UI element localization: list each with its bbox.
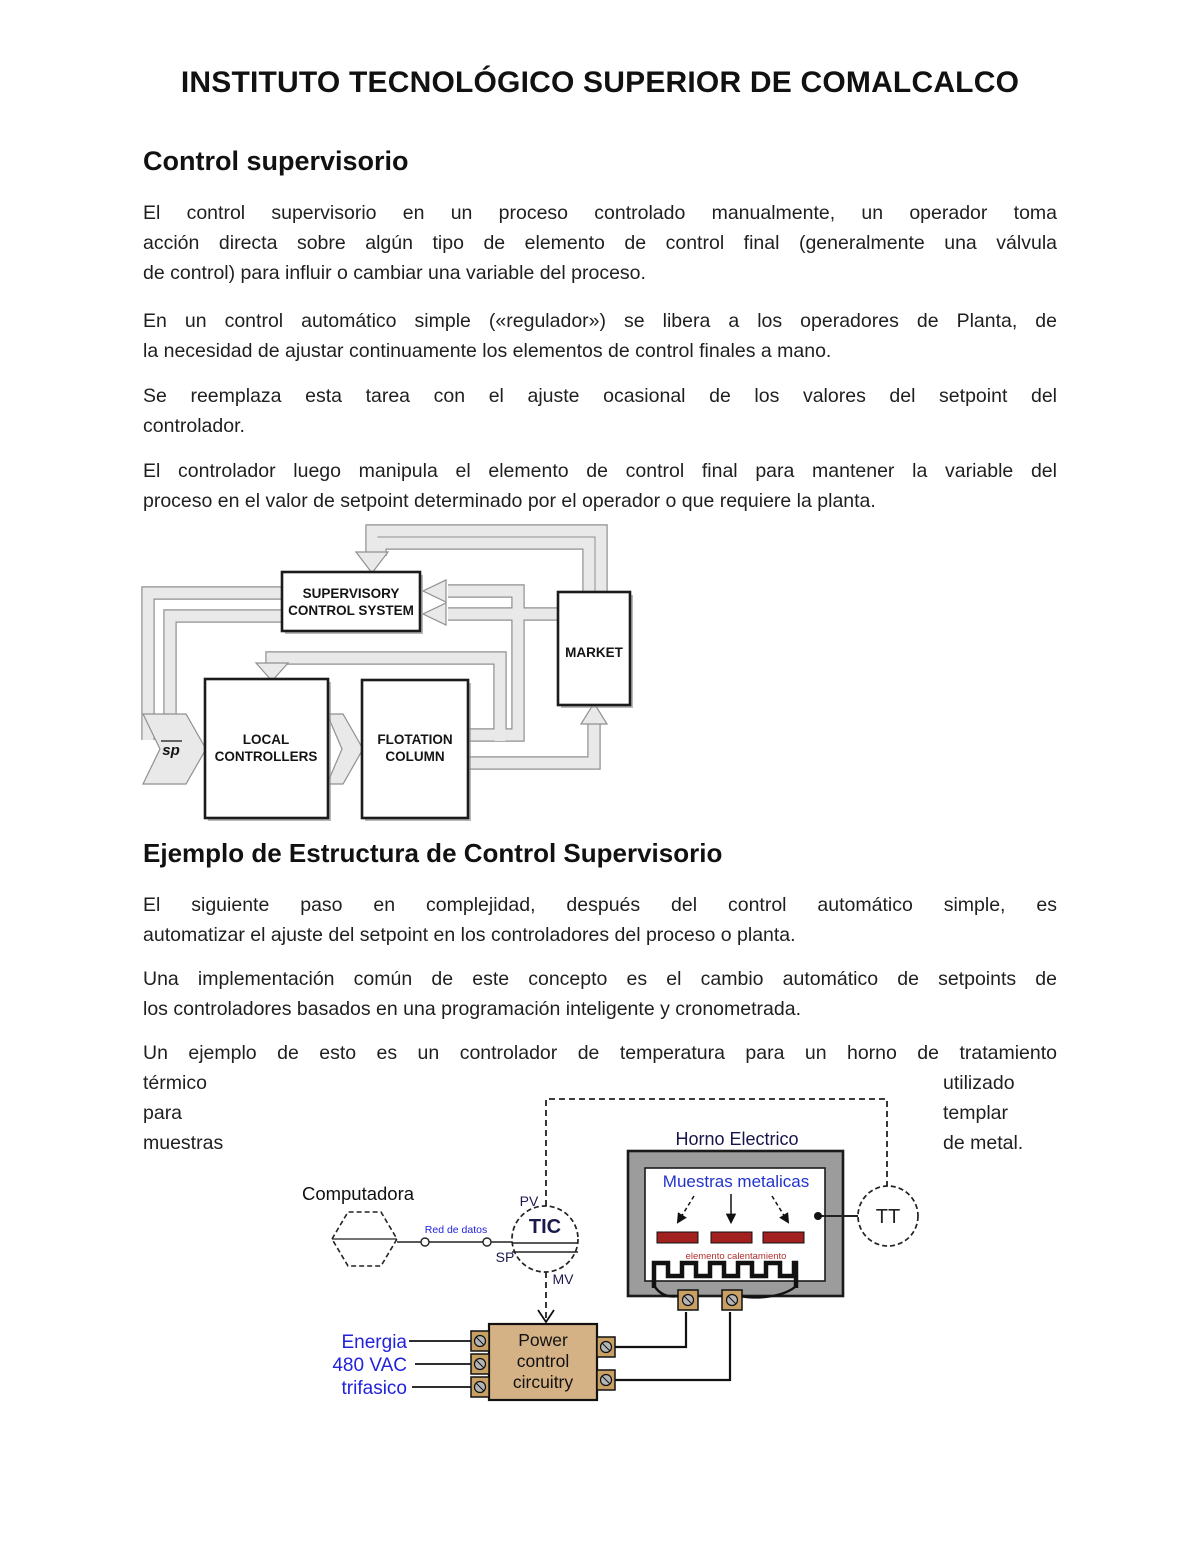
output-lines: [615, 1312, 730, 1380]
power-label-line2: control: [517, 1351, 570, 1371]
flotation-column-label-line1: FLOTATION: [377, 732, 452, 747]
controller-tag: TIC: [529, 1216, 561, 1238]
paragraph-line: los controladores basados en una program…: [143, 994, 1057, 1024]
section-heading-ejemplo: Ejemplo de Estructura de Control Supervi…: [143, 838, 722, 869]
supervisory-label-line1: SUPERVISORY: [303, 586, 400, 601]
sp-label: SP: [496, 1249, 515, 1265]
data-network-line: [397, 1238, 512, 1246]
computer-symbol: [332, 1212, 397, 1266]
paragraph-line: proceso en el valor de setpoint determin…: [143, 486, 1057, 516]
paragraph-1: El control supervisorio en un proceso co…: [143, 198, 1057, 288]
samples-label: Muestras metalicas: [663, 1172, 809, 1191]
wrap-left-word: muestras: [143, 1128, 223, 1158]
controllers-to-column-arrow: [327, 714, 363, 784]
paragraph-6: Una implementación común de este concept…: [143, 964, 1057, 1024]
paragraph-line: automatizar el ajuste del setpoint en lo…: [143, 920, 1057, 950]
furnace-title: Horno Electrico: [675, 1129, 798, 1149]
market-label: MARKET: [565, 645, 623, 660]
document-page: INSTITUTO TECNOLÓGICO SUPERIOR DE COMALC…: [0, 0, 1200, 1553]
paragraph-4: El controlador luego manipula el element…: [143, 456, 1057, 516]
network-label: Red de datos: [425, 1224, 487, 1236]
computer-label: Computadora: [302, 1183, 415, 1204]
supervisory-label-line2: CONTROL SYSTEM: [288, 603, 414, 618]
metal-samples: [657, 1232, 804, 1243]
flotation-column-label-line2: COLUMN: [385, 749, 444, 764]
paragraph-line: Se reemplaza esta tarea con el ajuste oc…: [143, 381, 1057, 411]
power-label-line1: Power: [518, 1330, 568, 1350]
paragraph-line: En un control automático simple («regula…: [143, 306, 1057, 336]
paragraph-line: de control) para influir o cambiar una v…: [143, 258, 1057, 288]
supply-lines: [409, 1341, 471, 1387]
paragraph-line: El control supervisorio en un proceso co…: [143, 198, 1057, 228]
power-control-label: Power control circuitry: [513, 1330, 574, 1392]
wrap-left-word: térmico: [143, 1068, 207, 1098]
document-title: INSTITUTO TECNOLÓGICO SUPERIOR DE COMALC…: [143, 66, 1057, 100]
paragraph-line: la necesidad de ajustar continuamente lo…: [143, 336, 1057, 366]
local-controllers-label-line2: CONTROLLERS: [215, 749, 318, 764]
section-heading-control-supervisorio: Control supervisorio: [143, 146, 409, 177]
wrap-left-word: para: [143, 1098, 182, 1128]
setpoint-label-group: sp: [161, 741, 182, 759]
energy-label-line1: Energia: [342, 1332, 408, 1353]
pv-label: PV: [520, 1193, 539, 1209]
paragraph-line: acción directa sobre algún tipo de eleme…: [143, 228, 1057, 258]
paragraph-3: Se reemplaza esta tarea con el ajuste oc…: [143, 381, 1057, 441]
local-controllers-label-line1: LOCAL: [243, 732, 290, 747]
setpoint-label: sp: [162, 742, 180, 759]
supervisory-control-diagram: SUPERVISORY CONTROL SYSTEM MARKET LOCAL …: [130, 515, 705, 835]
heater-label: elemento calentamiento: [686, 1251, 787, 1262]
paragraph-line: El siguiente paso en complejidad, despué…: [143, 890, 1057, 920]
transmitter-tag: TT: [876, 1206, 900, 1228]
power-label-line3: circuitry: [513, 1372, 574, 1392]
paragraph-5: El siguiente paso en complejidad, despué…: [143, 890, 1057, 950]
supervisory-box: [282, 572, 420, 631]
paragraph-line: controlador.: [143, 411, 1057, 441]
furnace-control-diagram: Computadora Red de datos TIC PV SP MV Ho…: [285, 1085, 960, 1410]
energy-labels: Energia 480 VAC trifasico: [332, 1332, 407, 1399]
energy-label-line3: trifasico: [342, 1378, 407, 1399]
paragraph-2: En un control automático simple («regula…: [143, 306, 1057, 366]
paragraph-line: Un ejemplo de esto es un controlador de …: [143, 1038, 1057, 1068]
energy-label-line2: 480 VAC: [332, 1355, 407, 1376]
paragraph-line: Una implementación común de este concept…: [143, 964, 1057, 994]
mv-label: MV: [553, 1271, 575, 1287]
paragraph-line: El controlador luego manipula el element…: [143, 456, 1057, 486]
